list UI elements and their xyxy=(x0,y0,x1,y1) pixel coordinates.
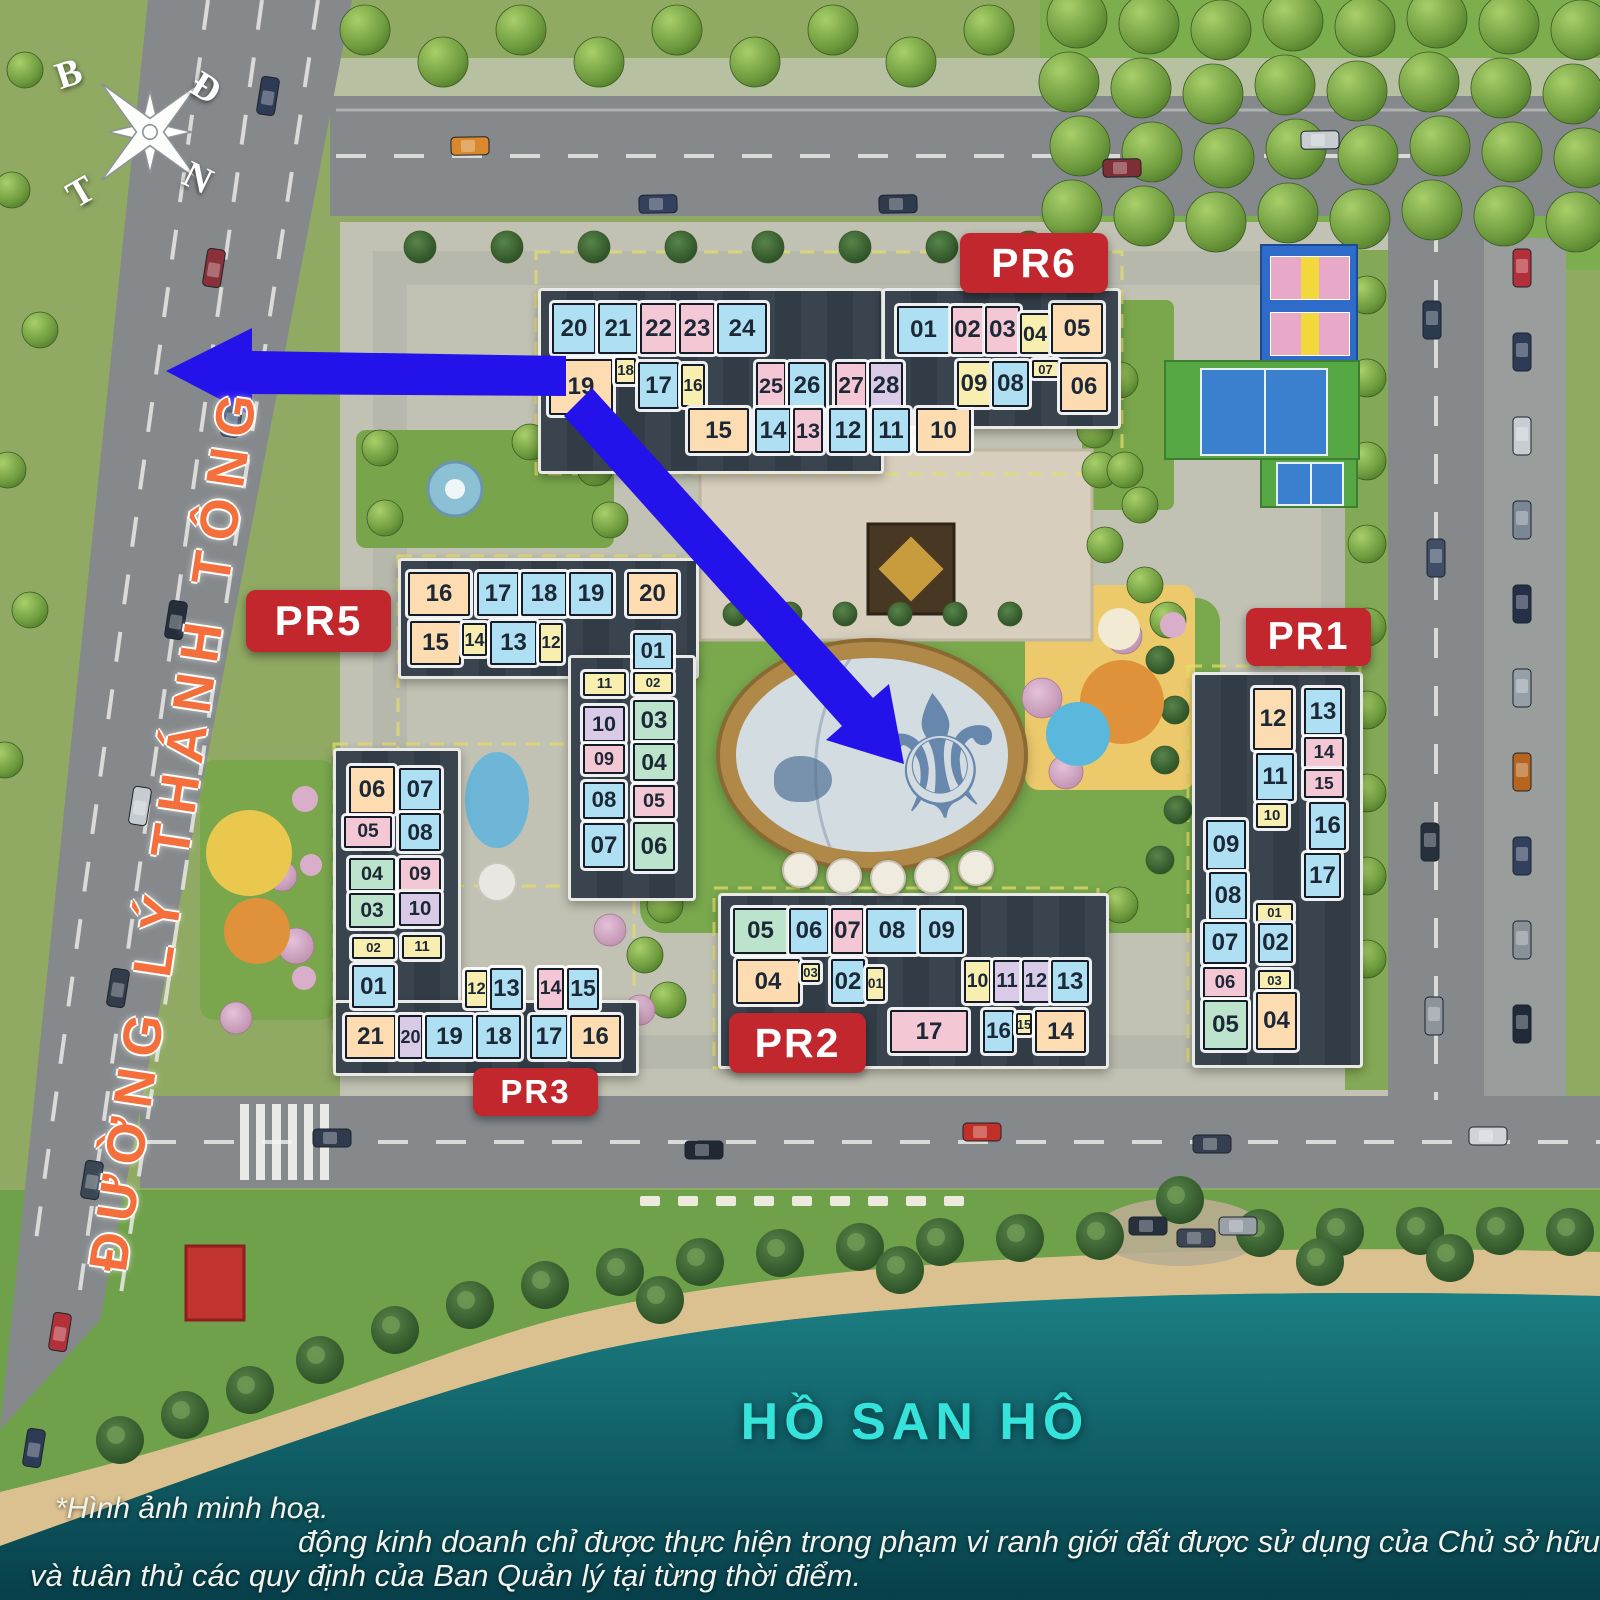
unit-pr2-01[interactable]: 01 xyxy=(866,967,885,1001)
unit-pr5-07[interactable]: 07 xyxy=(583,823,625,868)
unit-pr2-10[interactable]: 10 xyxy=(964,960,991,1003)
building-badge-pr5[interactable]: PR5 xyxy=(246,590,391,652)
unit-pr1-15[interactable]: 15 xyxy=(1304,769,1344,798)
unit-pr2-06[interactable]: 06 xyxy=(789,908,829,954)
unit-pr2-07[interactable]: 07 xyxy=(831,908,864,954)
unit-pr5-12[interactable]: 12 xyxy=(539,623,563,663)
unit-pr6-25[interactable]: 25 xyxy=(756,362,786,409)
unit-pr1-12[interactable]: 12 xyxy=(1253,688,1293,750)
unit-pr3-18[interactable]: 18 xyxy=(476,1015,521,1059)
unit-pr1-16[interactable]: 16 xyxy=(1309,802,1346,850)
unit-pr1-05[interactable]: 05 xyxy=(1203,1000,1248,1050)
unit-pr6-09[interactable]: 09 xyxy=(957,361,991,407)
unit-pr6-04[interactable]: 04 xyxy=(1020,313,1050,354)
unit-pr2-17[interactable]: 17 xyxy=(890,1010,968,1053)
unit-pr5-14[interactable]: 14 xyxy=(462,623,487,656)
unit-pr5-17[interactable]: 17 xyxy=(477,572,519,616)
site-plan: ⚜ 20212223241918171625262728151413121110… xyxy=(0,0,1600,1600)
unit-pr2-08[interactable]: 08 xyxy=(866,908,918,954)
unit-pr6-19[interactable]: 19 xyxy=(549,359,613,415)
unit-pr6-15[interactable]: 15 xyxy=(688,408,749,453)
unit-pr5-16[interactable]: 16 xyxy=(408,572,470,616)
unit-pr2-03[interactable]: 03 xyxy=(801,963,820,982)
unit-pr3-06[interactable]: 06 xyxy=(349,766,395,814)
unit-pr1-03[interactable]: 03 xyxy=(1258,970,1291,990)
unit-pr3-08[interactable]: 08 xyxy=(399,813,441,851)
unit-pr3-05[interactable]: 05 xyxy=(344,816,392,848)
unit-pr3-17[interactable]: 17 xyxy=(530,1015,568,1059)
unit-pr5-15[interactable]: 15 xyxy=(410,621,461,665)
unit-pr1-04[interactable]: 04 xyxy=(1256,992,1297,1050)
unit-pr2-11[interactable]: 11 xyxy=(993,960,1021,1003)
unit-pr6-03[interactable]: 03 xyxy=(985,306,1020,354)
unit-pr5-06[interactable]: 06 xyxy=(633,822,675,871)
unit-pr2-13[interactable]: 13 xyxy=(1051,960,1089,1003)
unit-pr3-03[interactable]: 03 xyxy=(349,893,395,928)
disclaimer-line-1: *Hình ảnh minh hoạ. xyxy=(55,1492,329,1526)
building-badge-pr2[interactable]: PR2 xyxy=(729,1013,866,1073)
unit-pr3-13[interactable]: 13 xyxy=(490,968,523,1010)
unit-pr5-20[interactable]: 20 xyxy=(627,572,678,616)
unit-pr3-04[interactable]: 04 xyxy=(349,858,395,891)
unit-pr1-08[interactable]: 08 xyxy=(1209,872,1247,920)
unit-pr1-10[interactable]: 10 xyxy=(1256,803,1288,828)
unit-pr6-06[interactable]: 06 xyxy=(1060,362,1108,412)
unit-pr6-14[interactable]: 14 xyxy=(755,408,791,453)
unit-pr2-14[interactable]: 14 xyxy=(1035,1010,1086,1053)
unit-pr3-15[interactable]: 15 xyxy=(567,968,599,1010)
unit-pr3-01[interactable]: 01 xyxy=(352,965,395,1008)
unit-pr5-10[interactable]: 10 xyxy=(583,706,625,742)
unit-pr5-13[interactable]: 13 xyxy=(490,621,537,665)
unit-pr2-12[interactable]: 12 xyxy=(1022,960,1050,1003)
unit-pr5-05[interactable]: 05 xyxy=(633,785,675,818)
unit-pr2-15[interactable]: 15 xyxy=(1016,1013,1032,1035)
unit-pr6-24[interactable]: 24 xyxy=(717,303,767,354)
disclaimer-line-3: và tuân thủ các quy định của Ban Quản lý… xyxy=(30,1558,861,1594)
unit-pr3-16[interactable]: 16 xyxy=(570,1015,621,1059)
unit-pr2-05[interactable]: 05 xyxy=(733,908,788,954)
unit-pr3-02[interactable]: 02 xyxy=(352,937,395,959)
unit-pr6-20[interactable]: 20 xyxy=(552,303,596,354)
unit-pr6-10[interactable]: 10 xyxy=(916,408,971,453)
unit-pr2-04[interactable]: 04 xyxy=(736,959,800,1004)
building-badge-pr6[interactable]: PR6 xyxy=(960,233,1108,293)
unit-pr1-09[interactable]: 09 xyxy=(1206,820,1246,870)
unit-pr2-09[interactable]: 09 xyxy=(919,908,964,954)
unit-pr6-02[interactable]: 02 xyxy=(951,306,984,354)
unit-pr5-04[interactable]: 04 xyxy=(633,743,675,781)
unit-pr5-11[interactable]: 11 xyxy=(583,672,626,696)
unit-pr1-17[interactable]: 17 xyxy=(1304,853,1341,898)
unit-pr5-03[interactable]: 03 xyxy=(633,700,675,741)
unit-pr5-01[interactable]: 01 xyxy=(633,633,673,670)
unit-pr6-05[interactable]: 05 xyxy=(1051,303,1103,354)
unit-pr5-02[interactable]: 02 xyxy=(633,672,673,694)
unit-pr6-22[interactable]: 22 xyxy=(640,303,677,354)
unit-pr2-16[interactable]: 16 xyxy=(983,1010,1014,1053)
building-badge-pr1[interactable]: PR1 xyxy=(1246,608,1371,666)
unit-pr6-28[interactable]: 28 xyxy=(869,362,903,409)
unit-pr3-12[interactable]: 12 xyxy=(465,970,488,1008)
unit-pr3-21[interactable]: 21 xyxy=(345,1015,396,1059)
compass-rose: B Đ T N xyxy=(52,30,247,225)
unit-pr3-14[interactable]: 14 xyxy=(537,968,564,1010)
unit-pr1-07[interactable]: 07 xyxy=(1203,922,1247,964)
unit-pr6-11[interactable]: 11 xyxy=(872,408,910,453)
unit-pr3-19[interactable]: 19 xyxy=(425,1015,474,1059)
unit-pr1-06[interactable]: 06 xyxy=(1203,967,1247,998)
unit-pr1-14[interactable]: 14 xyxy=(1304,737,1344,768)
building-badge-pr3[interactable]: PR3 xyxy=(473,1068,598,1116)
unit-pr6-27[interactable]: 27 xyxy=(835,362,867,409)
unit-pr6-18[interactable]: 18 xyxy=(615,358,636,384)
unit-pr2-02[interactable]: 02 xyxy=(831,959,865,1004)
unit-pr1-13[interactable]: 13 xyxy=(1304,688,1342,735)
unit-pr6-21[interactable]: 21 xyxy=(598,303,638,354)
disclaimer-line-2: động kinh doanh chỉ được thực hiện trong… xyxy=(298,1524,1600,1560)
unit-pr3-07[interactable]: 07 xyxy=(399,768,441,811)
unit-pr6-16[interactable]: 16 xyxy=(681,364,705,407)
unit-pr1-11[interactable]: 11 xyxy=(1256,753,1294,801)
unit-pr5-18[interactable]: 18 xyxy=(521,572,567,616)
unit-pr3-20[interactable]: 20 xyxy=(398,1015,423,1059)
unit-pr6-13[interactable]: 13 xyxy=(793,408,823,453)
unit-pr3-09[interactable]: 09 xyxy=(399,858,441,891)
unit-pr6-17[interactable]: 17 xyxy=(638,362,679,409)
lake-name-label: HỒ SAN HÔ xyxy=(700,1392,1130,1452)
unit-pr5-09[interactable]: 09 xyxy=(583,744,625,774)
unit-pr6-01[interactable]: 01 xyxy=(897,306,950,354)
unit-pr6-07[interactable]: 07 xyxy=(1032,360,1059,378)
unit-pr6-12[interactable]: 12 xyxy=(829,408,867,453)
unit-pr5-08[interactable]: 08 xyxy=(583,782,625,819)
unit-pr5-19[interactable]: 19 xyxy=(569,572,613,616)
unit-pr3-11[interactable]: 11 xyxy=(402,935,442,959)
unit-pr6-26[interactable]: 26 xyxy=(788,362,826,409)
unit-pr6-23[interactable]: 23 xyxy=(679,303,715,354)
unit-pr1-01[interactable]: 01 xyxy=(1256,903,1293,922)
unit-pr3-10[interactable]: 10 xyxy=(399,892,441,926)
unit-pr6-08[interactable]: 08 xyxy=(992,361,1029,407)
unit-pr1-02[interactable]: 02 xyxy=(1258,923,1293,963)
